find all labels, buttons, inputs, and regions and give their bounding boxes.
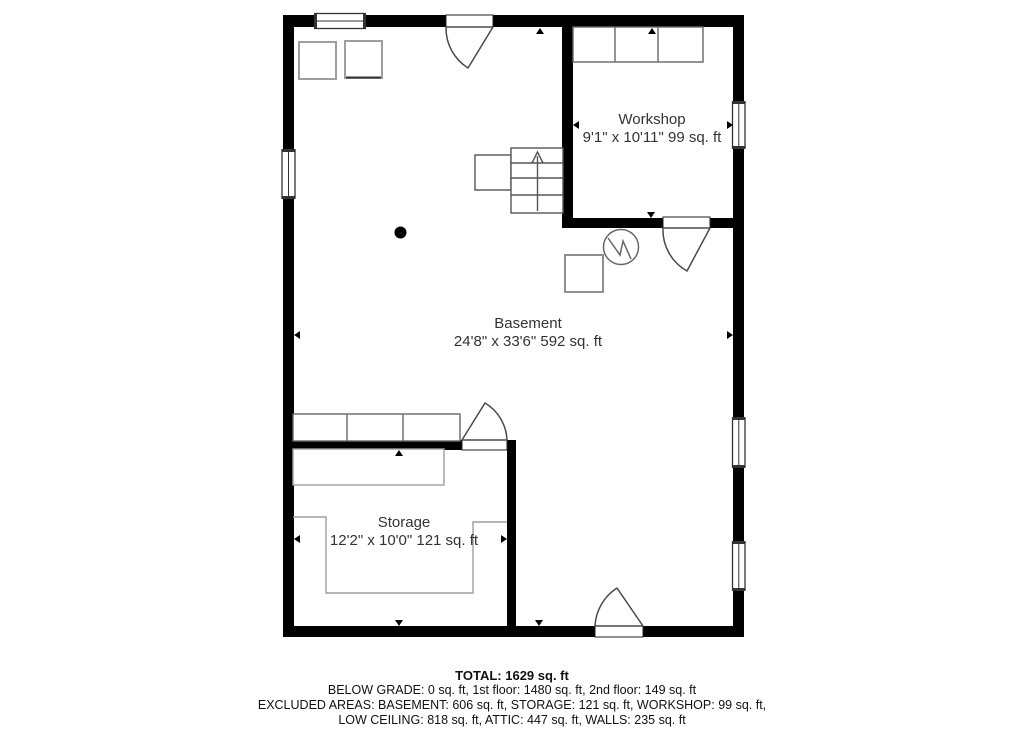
appliance-square-1-icon xyxy=(299,42,336,79)
summary-low-ceiling: LOW CEILING: 818 sq. ft, ATTIC: 447 sq. … xyxy=(0,713,1024,728)
door-opening-top xyxy=(446,15,493,27)
wall-left xyxy=(283,15,294,637)
door-opening-storage xyxy=(462,440,507,450)
wall-storage-right xyxy=(507,440,516,637)
window-right-upper-icon xyxy=(732,101,746,149)
summary-excluded-areas: EXCLUDED AREAS: BASEMENT: 606 sq. ft, ST… xyxy=(0,698,1024,713)
door-swing-bottom-icon xyxy=(595,588,643,626)
area-summary: TOTAL: 1629 sq. ft BELOW GRADE: 0 sq. ft… xyxy=(0,668,1024,728)
storage-shelf-icon xyxy=(293,449,444,485)
workshop-workbench-icon xyxy=(573,27,703,62)
utility-circle-icon xyxy=(604,230,639,265)
room-name: Storage xyxy=(330,514,478,532)
wall-workshop-bottom xyxy=(562,218,744,228)
marker-workshop-left xyxy=(573,121,579,129)
marker-basement-bottom xyxy=(535,620,543,626)
room-name: Workshop xyxy=(583,111,722,129)
room-dimensions: 24'8" x 33'6" 592 sq. ft xyxy=(454,333,602,351)
room-dimensions: 9'1" x 10'11" 99 sq. ft xyxy=(583,129,722,147)
floor-plan-page: Workshop 9'1" x 10'11" 99 sq. ft Basemen… xyxy=(0,0,1024,738)
door-swing-workshop-icon xyxy=(663,228,710,271)
marker-basement-left xyxy=(294,331,300,339)
stair-landing xyxy=(475,155,511,190)
marker-storage-bottom xyxy=(395,620,403,626)
door-swing-top-icon xyxy=(446,27,493,68)
window-left-icon xyxy=(282,149,296,199)
room-label-workshop: Workshop 9'1" x 10'11" 99 sq. ft xyxy=(583,111,722,147)
marker-storage-left xyxy=(294,535,300,543)
summary-below-grade: BELOW GRADE: 0 sq. ft, 1st floor: 1480 s… xyxy=(0,683,1024,698)
marker-storage-right xyxy=(501,535,507,543)
room-label-storage: Storage 12'2" x 10'0" 121 sq. ft xyxy=(330,514,478,550)
summary-total: TOTAL: 1629 sq. ft xyxy=(0,668,1024,683)
room-label-basement: Basement 24'8" x 33'6" 592 sq. ft xyxy=(454,315,602,351)
window-right-lower-icon xyxy=(732,541,746,591)
door-swing-storage-icon xyxy=(462,403,507,440)
marker-basement-top xyxy=(536,28,544,34)
basement-counter-icon xyxy=(293,414,460,441)
window-top-icon xyxy=(314,13,366,29)
door-opening-bottom xyxy=(595,626,643,637)
marker-workshop-bottom xyxy=(647,212,655,218)
door-opening-workshop xyxy=(663,217,710,228)
marker-basement-right xyxy=(727,331,733,339)
appliance-square-2-icon xyxy=(345,41,382,78)
furnace-square-icon xyxy=(565,255,603,292)
floor-plan-drawing xyxy=(0,0,1024,738)
room-dimensions: 12'2" x 10'0" 121 sq. ft xyxy=(330,532,478,550)
stairs-icon xyxy=(475,148,563,213)
window-right-middle-icon xyxy=(732,417,746,468)
room-name: Basement xyxy=(454,315,602,333)
support-column-icon xyxy=(395,227,407,239)
